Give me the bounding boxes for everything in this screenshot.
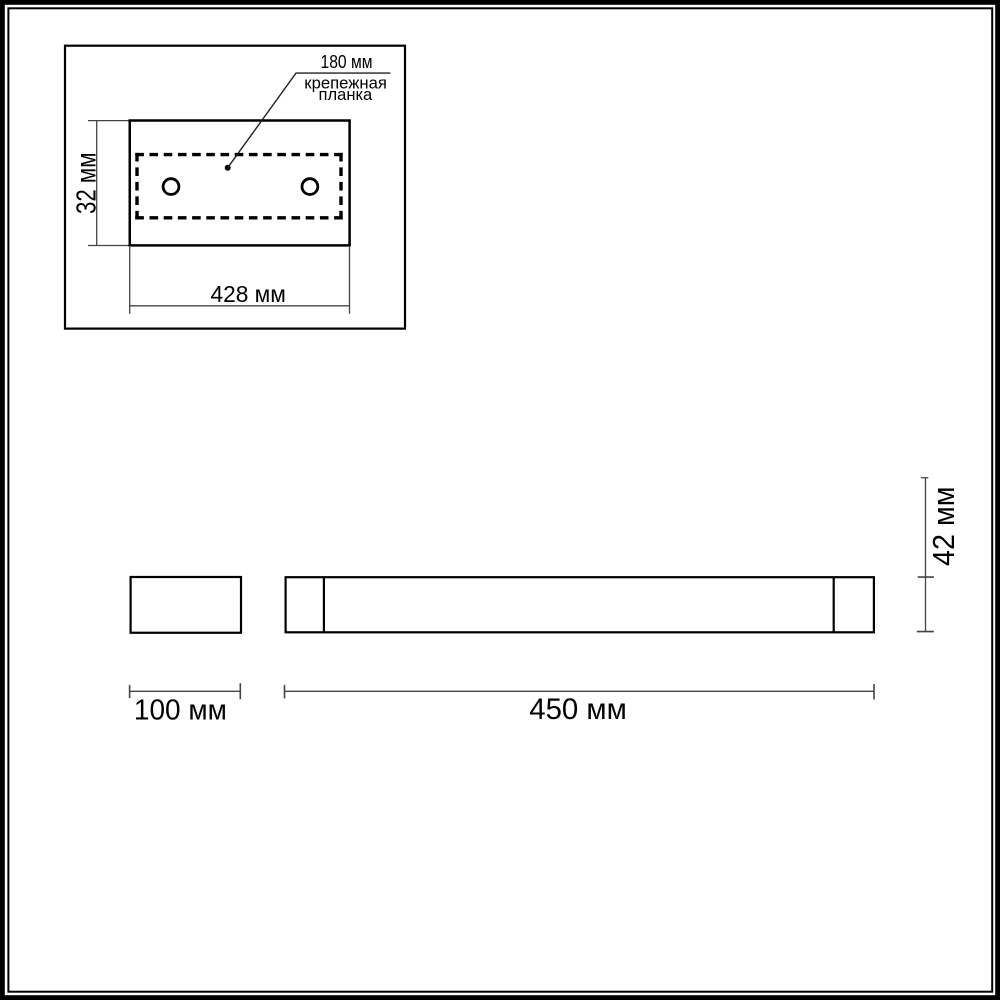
svg-text:428 мм: 428 мм (210, 281, 286, 307)
svg-text:100 мм: 100 мм (134, 695, 227, 727)
svg-text:32 мм: 32 мм (71, 153, 102, 215)
svg-text:450 мм: 450 мм (529, 693, 627, 726)
svg-text:180 мм: 180 мм (321, 51, 373, 72)
svg-text:42 мм: 42 мм (926, 487, 961, 567)
svg-text:планка: планка (319, 85, 373, 104)
